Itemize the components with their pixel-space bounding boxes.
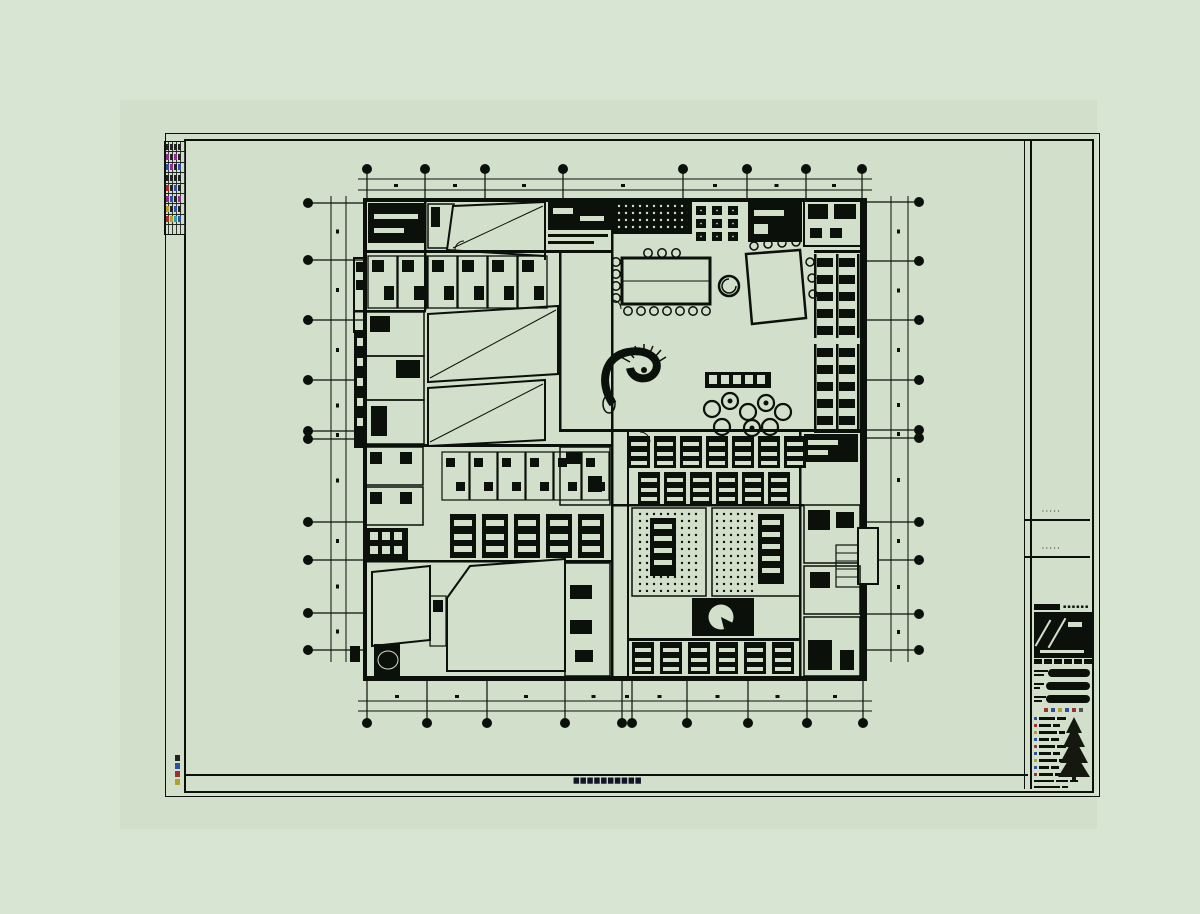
floor-plan-drawing xyxy=(0,0,1200,914)
plan-linework xyxy=(350,198,878,681)
viewer-canvas: ▆▆▆▆▆▆▆▆▆▆ ····· ····· ▪▪▪▪▪▪ xyxy=(0,0,1200,914)
